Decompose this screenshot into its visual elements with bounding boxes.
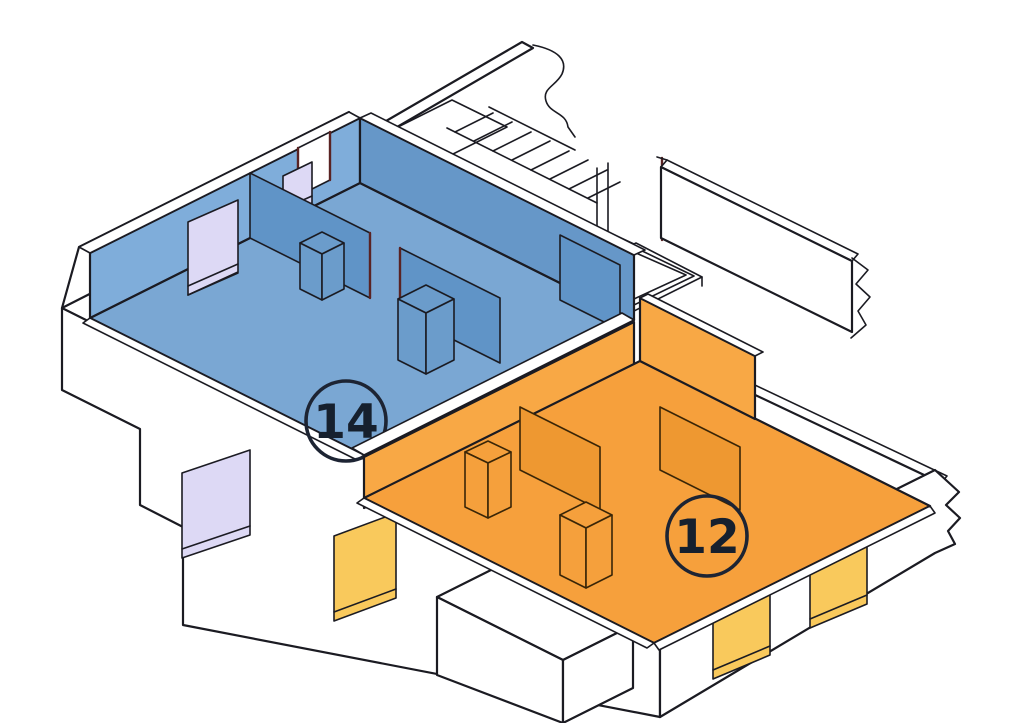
floorplan-canvas: 14 12 (0, 0, 1023, 723)
wall-break-squiggle (533, 45, 575, 137)
right-wall-upper (661, 160, 870, 338)
unit-12-number: 12 (674, 510, 739, 565)
isometric-floorplan: 14 12 (0, 0, 1023, 723)
break-line-upper (851, 258, 870, 338)
